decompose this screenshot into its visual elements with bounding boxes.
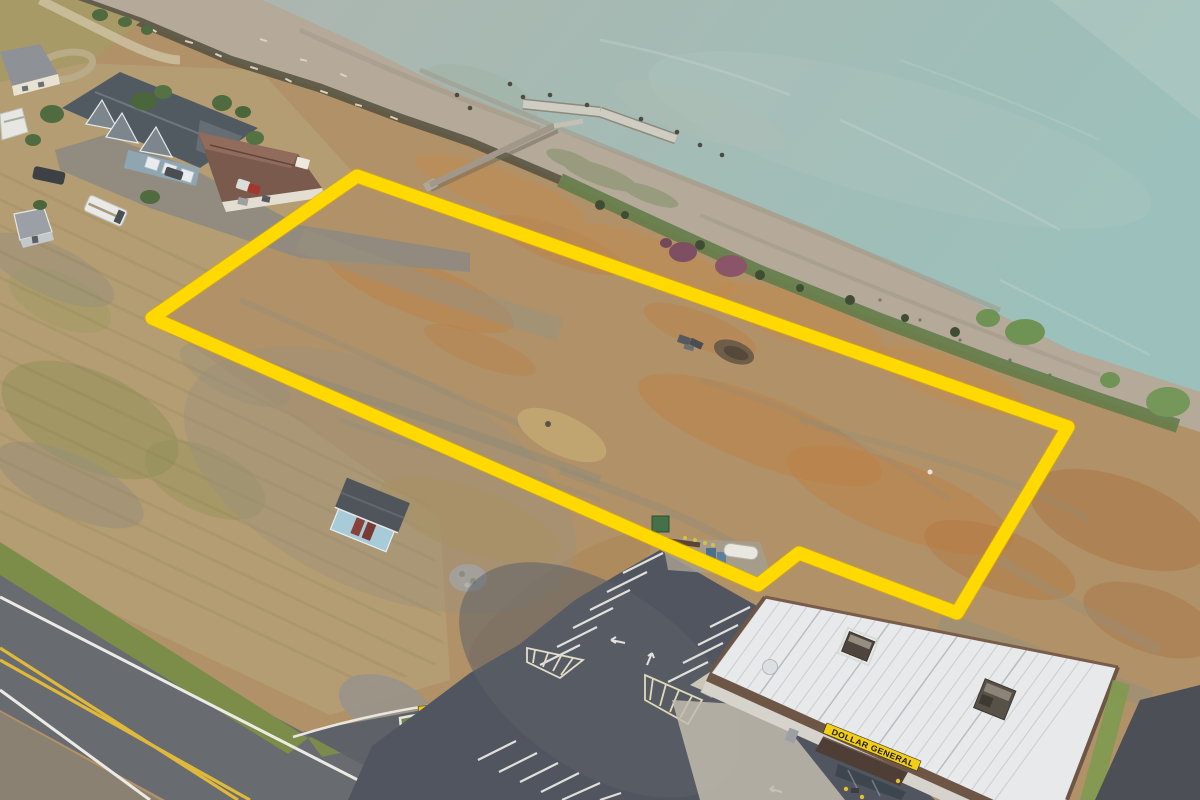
cart-bench (851, 788, 859, 793)
survey-marker (545, 421, 551, 427)
aerial-photo-canvas: DOLLAR GENERAL (0, 0, 1200, 800)
marker-post (928, 470, 933, 475)
aerial-photo: DOLLAR GENERAL (0, 0, 1200, 800)
green-utility-box (652, 516, 669, 532)
satellite-dish (763, 660, 778, 675)
